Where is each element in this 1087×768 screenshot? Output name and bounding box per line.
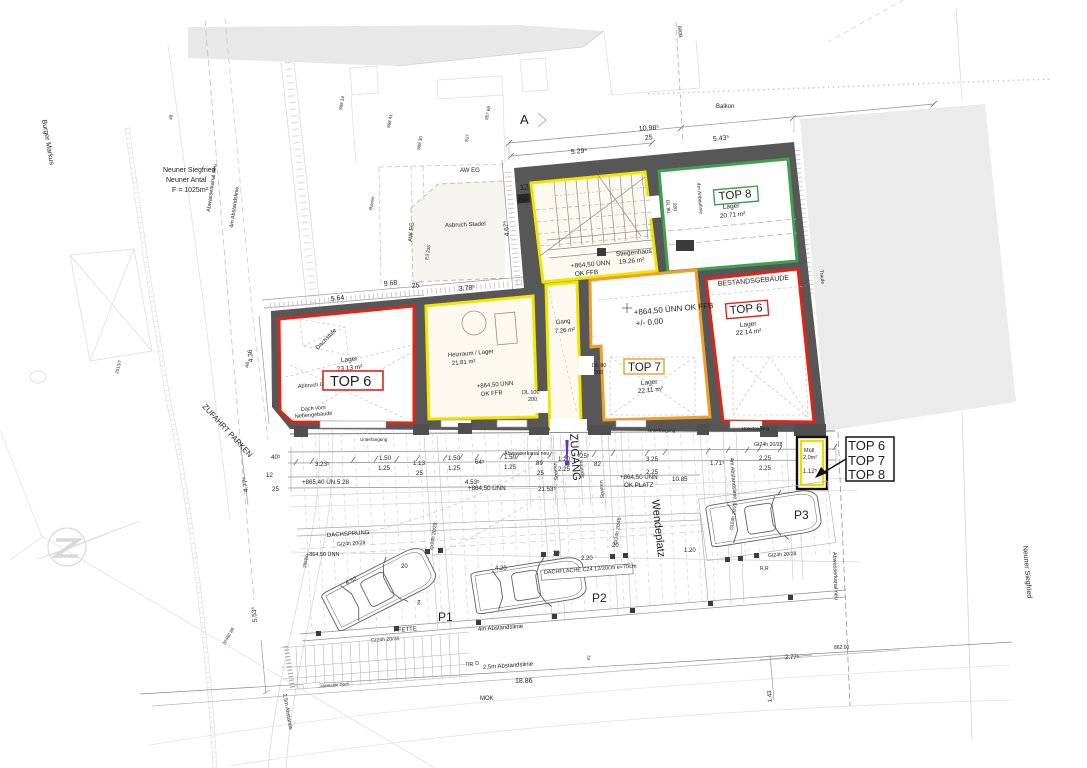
svg-text:600B: 600B	[676, 26, 683, 39]
svg-text:61: 61	[586, 654, 591, 660]
svg-text:P3: P3	[794, 508, 809, 522]
svg-text:1.50: 1.50	[448, 455, 461, 462]
svg-text:TOP 6: TOP 6	[330, 374, 371, 390]
svg-text:2.20: 2.20	[581, 556, 593, 562]
svg-text:+864,50 ÜNN: +864,50 ÜNN	[306, 551, 340, 558]
svg-text:25: 25	[416, 470, 423, 477]
svg-text:40⁵: 40⁵	[271, 454, 281, 461]
svg-text:4.67⁵: 4.67⁵	[503, 220, 511, 236]
svg-text:Unterfangung: Unterfangung	[360, 437, 388, 442]
svg-text:5.29⁵: 5.29⁵	[571, 148, 588, 156]
svg-text:A: A	[520, 112, 529, 127]
svg-text:DL 100: DL 100	[522, 390, 540, 396]
svg-text:2.25: 2.25	[759, 465, 772, 472]
svg-text:R,R: R,R	[760, 566, 769, 572]
svg-text:3.25: 3.25	[646, 456, 659, 463]
svg-text:64⁵: 64⁵	[475, 459, 485, 466]
svg-text:862,00: 862,00	[834, 645, 850, 651]
svg-text:TOP 8: TOP 8	[848, 467, 885, 482]
svg-text:4.20: 4.20	[495, 566, 507, 572]
svg-text:Gang: Gang	[556, 319, 571, 326]
svg-text:5.53⁵: 5.53⁵	[251, 606, 259, 622]
svg-text:Neuner Antal: Neuner Antal	[166, 177, 207, 184]
svg-text:21.53⁵: 21.53⁵	[538, 486, 556, 493]
svg-text:1.25: 1.25	[448, 465, 461, 472]
svg-text:25: 25	[537, 470, 544, 477]
svg-text:1.12⁵: 1.12⁵	[803, 468, 818, 475]
svg-text:1.25: 1.25	[378, 465, 391, 472]
svg-text:1.13: 1.13	[413, 460, 426, 467]
svg-text:Abwasserkanal neu: Abwasserkanal neu	[504, 451, 549, 457]
svg-text:OK PLATZ: OK PLATZ	[624, 482, 654, 489]
svg-text:Traufe: Traufe	[818, 270, 825, 285]
svg-text:DL 80: DL 80	[592, 363, 606, 369]
svg-text:P1: P1	[438, 610, 453, 624]
svg-text:TOP 7: TOP 7	[848, 453, 885, 468]
svg-text:89: 89	[536, 460, 543, 467]
svg-text:Müll: Müll	[804, 448, 814, 454]
svg-text:AW EG: AW EG	[460, 168, 480, 174]
svg-text:GI24h 20/28: GI24h 20/28	[754, 442, 783, 448]
svg-text:1.20: 1.20	[558, 456, 571, 463]
svg-text:82: 82	[594, 461, 601, 468]
svg-text:TOP 7: TOP 7	[628, 362, 661, 374]
svg-text:+865,40 ÜN 5.28: +865,40 ÜN 5.28	[302, 479, 350, 486]
svg-text:50: 50	[518, 194, 528, 204]
svg-text:4.36: 4.36	[247, 349, 255, 363]
svg-text:1.71⁵: 1.71⁵	[710, 460, 725, 467]
svg-text:20: 20	[612, 543, 619, 549]
svg-text:200: 200	[528, 397, 537, 403]
svg-text:3.23⁵: 3.23⁵	[315, 461, 330, 468]
svg-text:12: 12	[519, 182, 529, 192]
svg-text:P2: P2	[592, 591, 607, 605]
svg-text:+864,50 ÜNN: +864,50 ÜNN	[468, 485, 506, 492]
svg-text:9.68: 9.68	[383, 280, 397, 288]
svg-text:5.64: 5.64	[330, 295, 344, 303]
svg-text:MOK: MOK	[480, 696, 494, 702]
svg-text:25: 25	[645, 134, 653, 142]
svg-text:200: 200	[671, 203, 678, 212]
svg-text:1.20: 1.20	[684, 548, 696, 554]
svg-text:25: 25	[411, 282, 420, 290]
svg-text:F = 1025m²: F = 1025m²	[172, 187, 209, 194]
svg-text:2.25: 2.25	[558, 466, 571, 473]
svg-text:2.25: 2.25	[759, 455, 772, 462]
svg-text:RR: RR	[466, 662, 474, 668]
svg-text:Balkon: Balkon	[716, 104, 734, 110]
svg-text:12: 12	[266, 472, 273, 479]
svg-text:2.77⁵: 2.77⁵	[785, 654, 800, 661]
svg-text:2,0m²: 2,0m²	[803, 455, 817, 461]
svg-text:25⁵: 25⁵	[580, 453, 590, 460]
svg-text:10.85: 10.85	[672, 476, 688, 483]
svg-text:18.86: 18.86	[515, 678, 533, 685]
svg-text:Unterfangung: Unterfangung	[648, 428, 676, 433]
svg-text:5.43⁵: 5.43⁵	[713, 135, 730, 143]
svg-text:DL 80: DL 80	[664, 200, 671, 214]
svg-text:1.25: 1.25	[504, 464, 517, 471]
svg-text:25: 25	[272, 486, 279, 493]
svg-text:Neuner Siegfried: Neuner Siegfried	[163, 167, 216, 174]
svg-text:200: 200	[594, 370, 603, 376]
svg-text:Unterfangung: Unterfangung	[742, 426, 770, 431]
svg-text:TOP 6: TOP 6	[848, 438, 885, 453]
svg-text:+864,50 ÜNN: +864,50 ÜNN	[620, 474, 658, 481]
svg-text:1.50: 1.50	[379, 455, 392, 462]
svg-text:20: 20	[401, 564, 408, 570]
svg-text:4.77⁶: 4.77⁶	[242, 476, 250, 492]
svg-text:1.43: 1.43	[767, 690, 774, 703]
